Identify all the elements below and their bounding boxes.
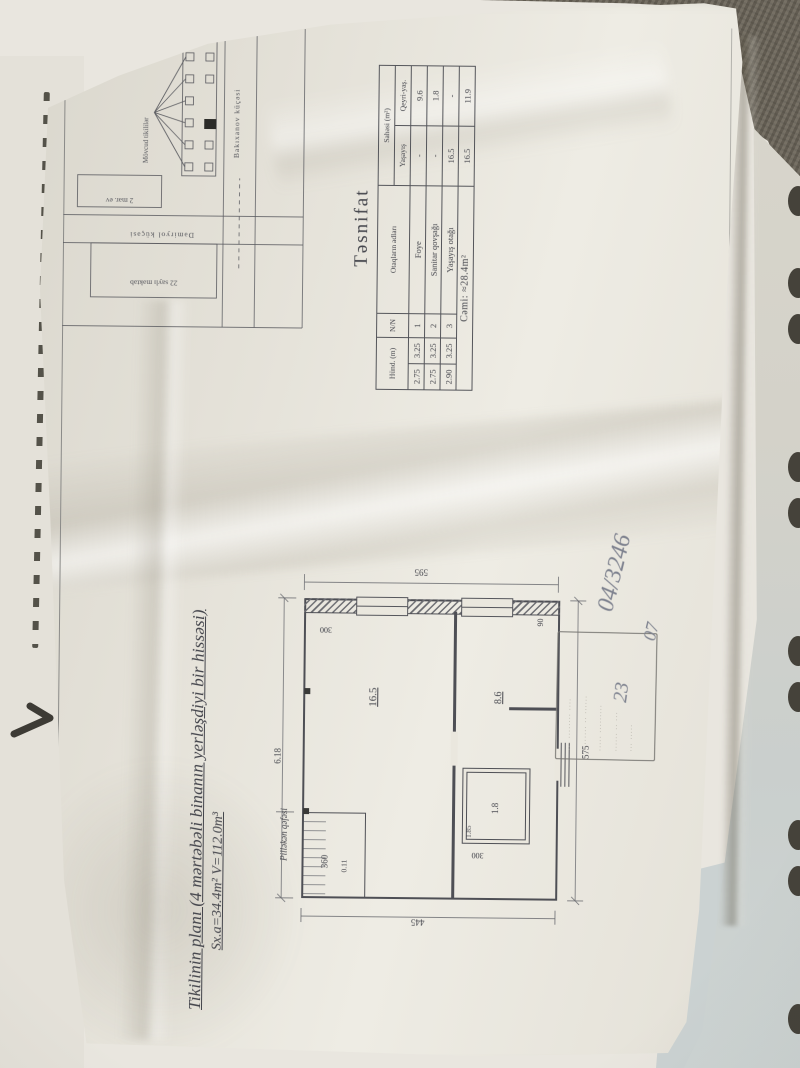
site-plan: Mövcud tikililər Bakıxanov küçəsi Dəmiry… <box>62 21 311 330</box>
cell-room: Yaşayış otağı <box>441 186 458 314</box>
document-sheet: Tikilinin planı (4 mərtəbəli binanın yer… <box>0 0 800 1068</box>
dim-door-width: 300 <box>472 851 484 860</box>
table-heading: Təsnifat <box>349 66 374 390</box>
cell-area-res: 16.5 <box>442 126 459 186</box>
hatched-wall <box>304 598 560 616</box>
wall-pier <box>304 688 310 694</box>
dim-right: 595 <box>415 567 429 577</box>
cell-height-1: 2.75 <box>424 364 440 390</box>
dim-pier: 90 <box>536 618 545 626</box>
dim-window-width: 300 <box>320 625 332 634</box>
table-total-row: Cəmi: ≈28.4m² 16.5 11.9 <box>456 66 475 390</box>
cell-nn: 1 <box>409 314 425 338</box>
classification-table-area: Təsnifat Hünd. (m) N/N Otaqların adları … <box>349 50 476 391</box>
cell-nn: 2 <box>425 314 441 338</box>
col-header-nn: N/N <box>377 313 409 337</box>
binder-hole <box>788 452 800 482</box>
binder-hole <box>788 314 800 344</box>
cell-room: Sanitar qovşağı <box>425 186 442 314</box>
door-opening <box>451 732 458 766</box>
cell-height-1: 2.90 <box>440 364 456 390</box>
dim-left: 445 <box>411 917 425 927</box>
street-label-vertical: Dəmiryol küçəsi <box>103 230 221 240</box>
handwritten-number: 04/3246 <box>593 532 638 615</box>
total-area-nonres: 11.9 <box>459 66 476 126</box>
handwritten-page-number: 23 <box>609 681 634 704</box>
binder-hole <box>788 682 800 712</box>
cell-nn: 3 <box>441 314 457 338</box>
room-area-bath: 1.8 <box>490 803 500 814</box>
binder-hole <box>788 1004 800 1034</box>
binder-hole <box>788 866 800 896</box>
stairwell-label: Pilləkən qəfəsi <box>279 808 290 861</box>
cell-room: Foye <box>409 186 426 314</box>
drawing-title-block: Tikilinin planı (4 mərtəbəli binanın yer… <box>185 490 230 1010</box>
interior-wall-stub <box>509 707 559 711</box>
cell-area-res: - <box>410 126 427 186</box>
dim-stair: 360 <box>319 855 329 869</box>
site-plan-building-label-large: 22 saylı məktəb <box>97 253 211 288</box>
binder-hole <box>788 636 800 666</box>
street-label-horizontal: Bakıxanov küçəsi <box>231 38 242 208</box>
site-plan-building-label-small: 2 mər. ev <box>81 177 157 206</box>
floor-plan: Pilləkən qəfəsi 16.5 8.6 1.8 1.85 6.18 5… <box>293 574 571 907</box>
col-header-area-group: Sahəsi (m²) <box>378 65 395 185</box>
stair-cage <box>303 812 366 897</box>
window-symbol <box>356 597 408 617</box>
room-area-living: 16.5 <box>367 687 379 706</box>
classification-table: Hünd. (m) N/N Otaqların adları Sahəsi (m… <box>375 65 475 391</box>
cell-height-2: 3.25 <box>408 338 424 364</box>
total-area-res: 16.5 <box>458 126 475 186</box>
col-header-area-res: Yaşayış <box>394 125 411 185</box>
col-header-rooms: Otaqların adları <box>377 185 410 313</box>
cell-area-nonres: 1.8 <box>427 66 444 126</box>
total-label: Cəmi: ≈28.4m² <box>456 186 474 390</box>
binder-hole <box>788 820 800 850</box>
col-header-area-nonres: Qeyri-yaş. <box>395 65 412 125</box>
stamp-text-line: ··· ········ ···· <box>562 640 580 750</box>
wall-pier <box>303 808 309 814</box>
binder-hole <box>788 268 800 298</box>
cell-area-nonres: 9.6 <box>411 66 428 126</box>
drawing-title: Tikilinin planı (4 mərtəbəli binanın yer… <box>185 490 210 1010</box>
drawing-subtitle: Sx.a=34.4m² V=112.0m³ <box>210 490 231 950</box>
architectural-drawing: Tikilinin planı (4 mərtəbəli binanın yer… <box>55 27 735 1034</box>
cell-height-1: 2.75 <box>408 364 424 390</box>
window-symbol <box>461 598 513 618</box>
cell-area-res: - <box>426 126 443 186</box>
dim-wall-thickness: 0.11 <box>339 860 348 873</box>
room-area-hall: 8.6 <box>493 692 504 705</box>
stamp-box: ··· ········ ···· ········ ·· ······ ···… <box>555 631 658 761</box>
cell-height-2: 3.25 <box>440 338 456 364</box>
dim-bath-width: 1.85 <box>465 825 473 837</box>
cell-height-2: 3.25 <box>424 338 440 364</box>
binder-hole <box>788 186 800 216</box>
photo-of-floor-plan-document: Tikilinin planı (4 mərtəbəli binanın yer… <box>0 0 800 1068</box>
binder-hole <box>788 498 800 528</box>
dim-top: 6.18 <box>273 748 283 764</box>
cell-area-nonres: - <box>443 66 460 126</box>
col-header-height: Hünd. (m) <box>376 337 409 389</box>
